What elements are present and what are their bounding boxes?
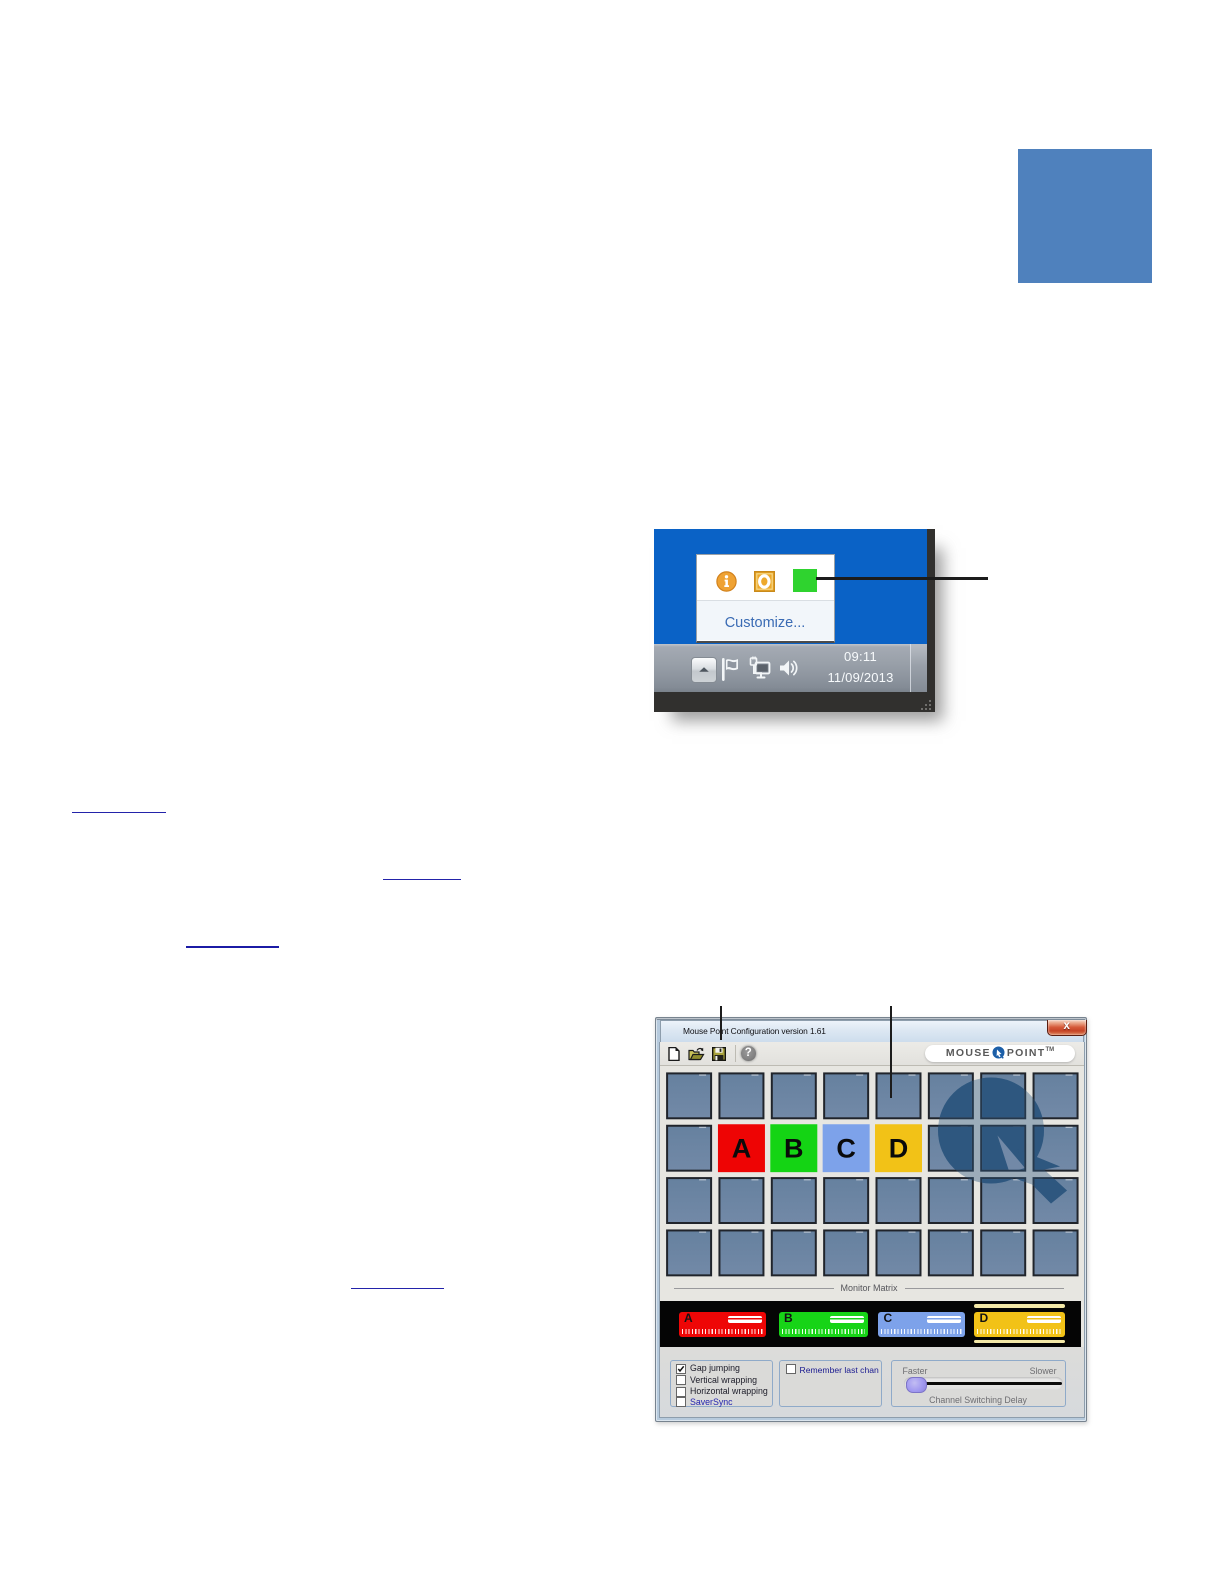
svg-text:C: C (836, 1133, 856, 1163)
svg-text:A: A (732, 1133, 752, 1163)
svg-text:B: B (784, 1133, 804, 1163)
svg-text:D: D (889, 1133, 909, 1163)
